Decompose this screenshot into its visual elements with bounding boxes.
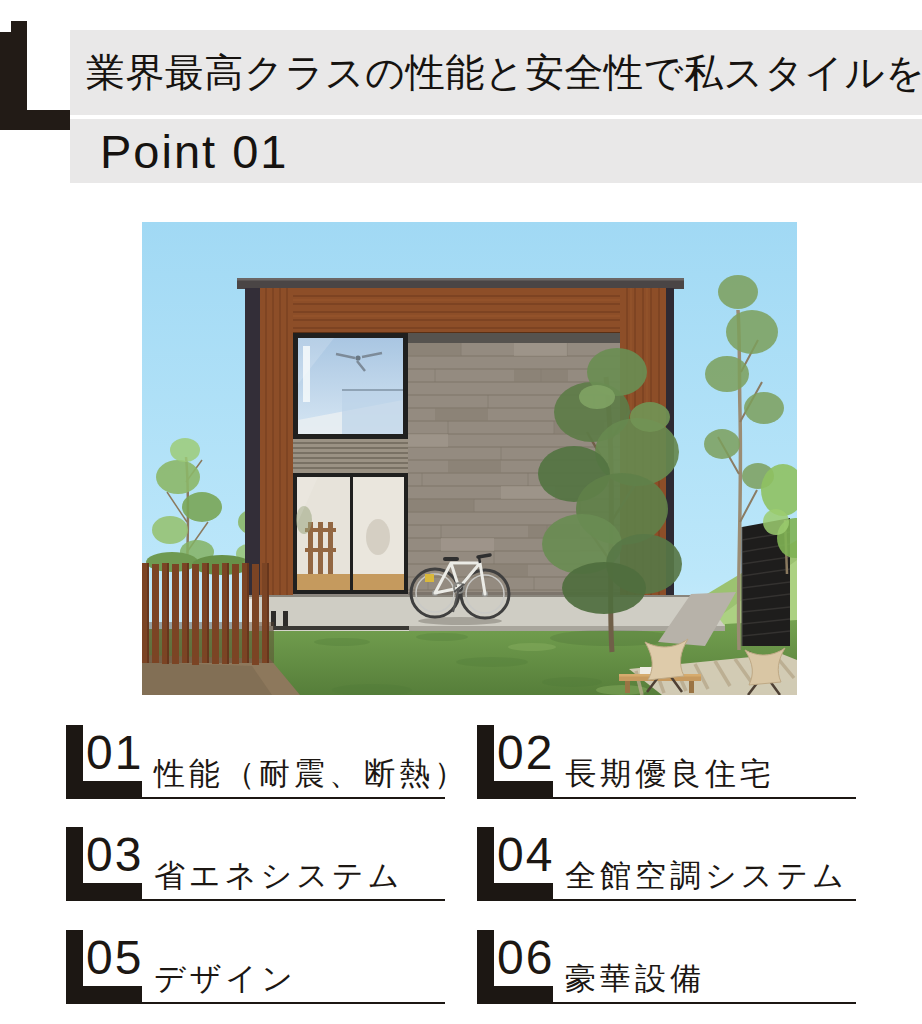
louver-panel [293,439,408,473]
point-item-06: 06 豪華設備 [477,930,856,1004]
house-illustration [142,222,797,695]
house-rendering-image [142,222,797,695]
page-headline: 業界最高クラスの性能と安全性で私スタイルを作る [86,46,922,100]
item-number: 03 [86,831,143,879]
upper-window [293,333,408,439]
point-item-04: 04 全館空調システム [477,827,856,901]
sliding-door [293,473,408,594]
item-number: 05 [86,934,143,982]
item-label: デザイン [154,958,297,1000]
wood-frame-beam [260,288,666,335]
headline-band: 業界最高クラスの性能と安全性で私スタイルを作る [70,30,922,115]
point-item-02: 02 長期優良住宅 [477,725,856,799]
item-label: 豪華設備 [565,958,705,1000]
point-item-01: 01 性能（耐震、断熱） [66,725,445,799]
item-label: 長期優良住宅 [565,753,775,795]
item-label: 省エネシステム [154,855,403,897]
item-number: 06 [497,934,554,982]
header-banner: 業界最高クラスの性能と安全性で私スタイルを作る Point 01 [70,30,922,183]
point-item-03: 03 省エネシステム [66,827,445,901]
point-band: Point 01 [70,119,922,183]
flyer-page: 業界最高クラスの性能と安全性で私スタイルを作る Point 01 [0,0,922,1024]
item-label: 性能（耐震、断熱） [154,753,469,795]
item-number: 01 [86,729,143,777]
point-item-05: 05 デザイン [66,930,445,1004]
item-number: 02 [497,729,554,777]
left-wall-edge [245,288,260,597]
point-number-title: Point 01 [100,124,288,179]
item-number: 04 [497,831,554,879]
item-label: 全館空調システム [565,855,848,897]
